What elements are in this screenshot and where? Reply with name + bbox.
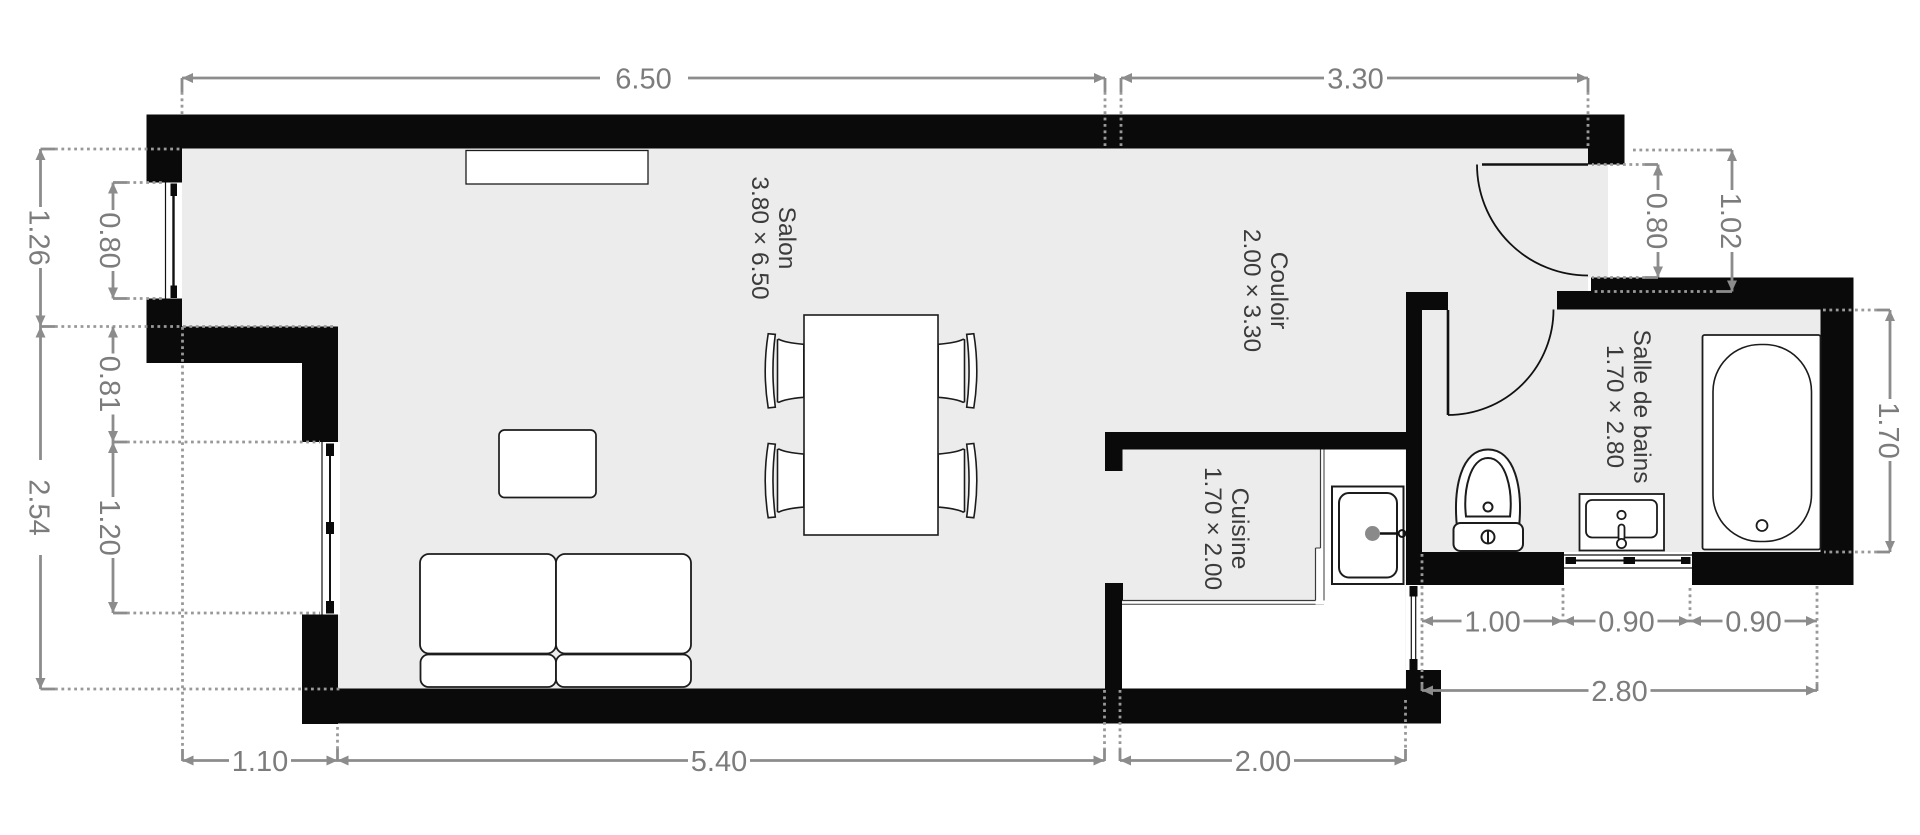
svg-text:1.70: 1.70: [1872, 402, 1904, 458]
svg-text:1.20: 1.20: [93, 499, 125, 555]
svg-text:1.02: 1.02: [1714, 193, 1746, 249]
svg-text:0.81: 0.81: [93, 356, 125, 412]
svg-text:2.00: 2.00: [1235, 746, 1291, 778]
svg-text:Salle de bains1.70 × 2.80: Salle de bains1.70 × 2.80: [1601, 330, 1655, 484]
svg-text:1.00: 1.00: [1464, 607, 1520, 639]
svg-text:2.80: 2.80: [1591, 676, 1647, 708]
svg-text:0.80: 0.80: [1640, 193, 1672, 249]
svg-text:3.30: 3.30: [1327, 64, 1383, 96]
svg-text:1.10: 1.10: [232, 746, 288, 778]
svg-text:2.54: 2.54: [23, 479, 55, 535]
svg-text:0.90: 0.90: [1598, 607, 1654, 639]
svg-text:5.40: 5.40: [691, 746, 747, 778]
svg-text:0.80: 0.80: [93, 212, 125, 268]
svg-text:6.50: 6.50: [615, 64, 671, 96]
svg-text:0.90: 0.90: [1725, 607, 1781, 639]
svg-text:1.26: 1.26: [23, 209, 55, 265]
